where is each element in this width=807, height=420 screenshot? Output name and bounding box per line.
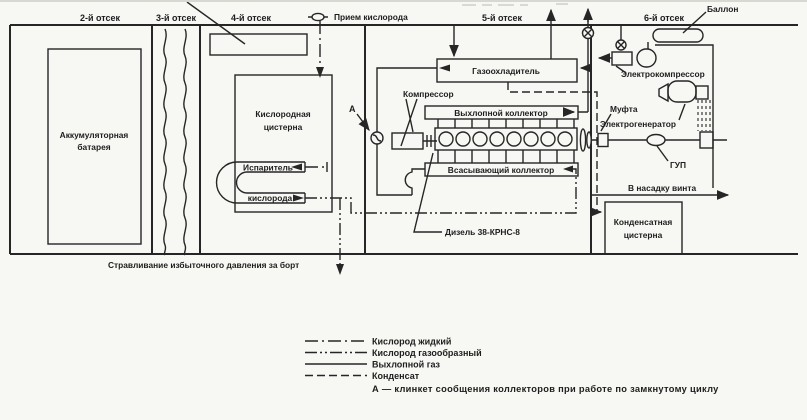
electrocompressor: [612, 52, 632, 65]
oxygen-intake-label: Прием кислорода: [334, 12, 408, 22]
oxygen-intake-valve-icon: [308, 13, 328, 20]
overboard-vent-label: Стравливание избыточного давления за бор…: [108, 260, 299, 270]
receiver: [637, 49, 656, 67]
generator-label: Электрогенератор: [600, 119, 676, 129]
condensate-tank-label-line2: цистерна: [624, 230, 663, 240]
compartment-6-label: 6-й отсек: [644, 13, 685, 23]
compartment-2-label: 2-й отсек: [80, 13, 121, 23]
break-wavy-line: [164, 29, 166, 255]
exhaust-manifold-label: Выхлопной коллектор: [454, 108, 547, 118]
manifold-connection-pipe: [377, 144, 425, 195]
legend: Кислород жидкий Кислород газообразный Вы…: [305, 337, 719, 395]
nozzle-label: В насадку винта: [628, 183, 696, 193]
condensate-tank-label-line1: Конденсатная: [614, 217, 673, 227]
cooler-return-pipe: [377, 68, 437, 132]
thrust-block: [700, 132, 713, 148]
electrocompressor-label: Электрокомпрессор: [621, 69, 705, 79]
legend-label-condensate: Конденсат: [372, 371, 420, 381]
evaporator: Испаритель кислорода: [217, 162, 305, 203]
clutch-box: [598, 134, 608, 147]
gup-leader: [657, 146, 668, 161]
gup-coupling: [647, 135, 665, 146]
legend-label-liquid-oxygen: Кислород жидкий: [372, 337, 451, 347]
valve-icon: [616, 40, 626, 50]
diesel-label: Дизель 38-КРНС-8: [445, 227, 520, 237]
evaporator-label-line1: Испаритель: [243, 163, 293, 173]
liquid-oxygen-stub: [305, 162, 327, 172]
gup-label: ГУП: [670, 160, 686, 170]
left-arrow-icon: [563, 166, 573, 173]
break-wavy-line: [184, 29, 186, 255]
condensate-tank: [605, 202, 682, 254]
down-arrow-icon: [316, 67, 324, 78]
down-arrow-icon: [336, 264, 344, 275]
diesel-plant: Газоохладитель А Компрессор Выхлопной ко…: [349, 9, 601, 237]
bottle-label: Баллон: [707, 4, 738, 14]
compartment-4-label: 4-й отсек: [231, 13, 272, 23]
compartment-5-label: 5-й отсек: [482, 13, 523, 23]
clutch-label: Муфта: [610, 104, 638, 114]
oxygen-tank-label-line2: цистерна: [264, 122, 303, 132]
compressor: [392, 133, 423, 149]
unlabeled-cabinet: [210, 34, 307, 55]
overboard-valve-icon: [583, 28, 594, 39]
battery-label-line1: Аккумуляторная: [60, 130, 129, 140]
aft-compartment: Муфта ГУП Электрогенератор Электрокомпре…: [580, 4, 738, 254]
valve-a-leader: [357, 114, 369, 130]
battery-label-line2: батарея: [77, 142, 110, 152]
right-arrow-icon: [293, 195, 304, 202]
left-arrow-icon: [439, 65, 450, 72]
gas-cooler-label: Газоохладитель: [472, 66, 540, 76]
valve-a-icon: [371, 132, 383, 144]
scan-artifact: [462, 4, 568, 5]
legend-note: А — клинкет сообщения коллекторов при ра…: [372, 384, 719, 394]
cropped-leader-line: [187, 2, 245, 44]
generator-cables: [698, 100, 710, 131]
oxygen-tank-label-line1: Кислородная: [255, 109, 310, 119]
accumulator-battery: Аккумуляторная батарея: [48, 49, 141, 244]
legend-label-gaseous-oxygen: Кислород газообразный: [372, 348, 482, 358]
oxygen-tank: [235, 75, 332, 212]
diesel-leader: [414, 153, 442, 232]
diesel-engine: [435, 119, 577, 163]
compartment-3-label: 3-й отсек: [156, 13, 197, 23]
valve-a-marker: А: [349, 104, 356, 114]
compressor-label: Компрессор: [403, 89, 454, 99]
flywheel: [580, 129, 585, 151]
scanned-diagram-page: 2-й отсек 3-й отсек 4-й отсек 5-й отсек …: [0, 0, 807, 420]
intake-manifold-label: Всасывающий коллектор: [448, 165, 554, 175]
evaporator-label-line2: кислорода: [248, 193, 293, 203]
submarine-closed-cycle-diesel-diagram: 2-й отсек 3-й отсек 4-й отсек 5-й отсек …: [0, 2, 807, 420]
legend-label-exhaust-gas: Выхлопной газ: [372, 360, 441, 370]
compressor-leaders: [401, 99, 417, 146]
generator-leader: [679, 104, 685, 120]
bottle: [653, 29, 703, 42]
